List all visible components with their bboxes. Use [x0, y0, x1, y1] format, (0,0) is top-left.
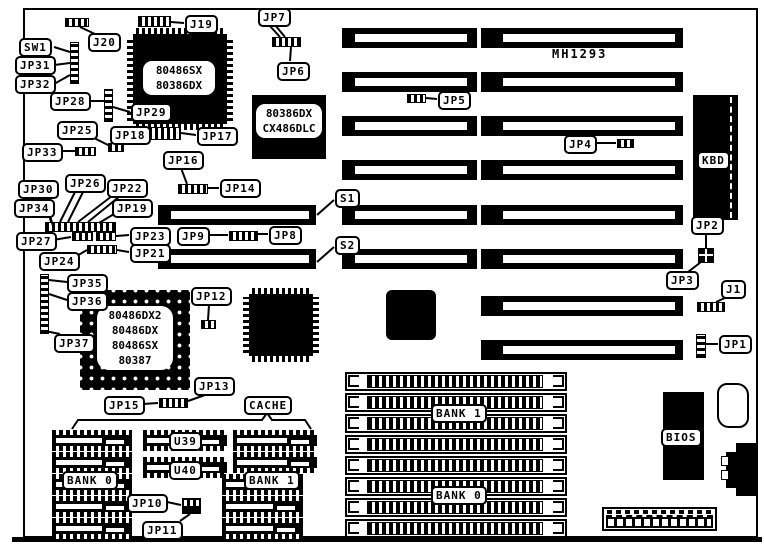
cache-dip-chip: [222, 496, 303, 517]
callout-jp35: JP35: [67, 274, 108, 293]
callout-jp30: JP30: [18, 180, 59, 199]
simm-socket: [345, 372, 567, 391]
isa-slot-long: [481, 116, 683, 136]
cache-dip-chip: [52, 496, 132, 517]
chip-line: 80486DX2: [99, 308, 171, 323]
isa-slot-short: [342, 72, 477, 92]
callout-jp6: JP6: [277, 62, 310, 81]
jumper-jp12: [201, 320, 216, 329]
chip-line: 80386DX: [145, 78, 213, 93]
callout-jp16: JP16: [163, 151, 204, 170]
callout-jp8: JP8: [269, 226, 302, 245]
jumper-jp9: [229, 231, 258, 241]
jumper-cluster-main: [45, 222, 116, 232]
callout-jp12: JP12: [191, 287, 232, 306]
jumper-jp33: [75, 147, 96, 156]
callout-jp1: JP1: [719, 335, 752, 354]
callout-bank1_cache: BANK 1: [244, 471, 300, 490]
isa-slot-short: [342, 28, 477, 48]
jumper-jp10: [182, 498, 201, 514]
isa-slot-long: [481, 28, 683, 48]
power-tab: [721, 456, 729, 466]
jumper-jp2: [698, 248, 714, 263]
callout-jp5: JP5: [438, 91, 471, 110]
chip-qfp-486sx-label: 80486SX 80386DX: [143, 61, 215, 95]
callout-bank0_simm: BANK 0: [431, 486, 487, 505]
callout-jp34: JP34: [14, 199, 55, 218]
cache-dip-chip: [52, 430, 132, 451]
bottom-pin-header: [602, 507, 717, 531]
board-model: MH1293: [552, 47, 607, 61]
motherboard-diagram: MH1293 80486SX 80386DX 80386DX CX486DLC …: [0, 0, 764, 547]
callout-jp13: JP13: [194, 377, 235, 396]
chip-line: 80387: [99, 353, 171, 368]
jumper-jp14: [178, 184, 208, 194]
callout-j1: J1: [721, 280, 746, 299]
callout-jp19: JP19: [112, 199, 153, 218]
callout-jp3: JP3: [666, 271, 699, 290]
cache-dip-chip: [52, 452, 132, 473]
callout-jp21: JP21: [130, 244, 171, 263]
chip-line: 80486SX: [145, 63, 213, 78]
callout-jp37: JP37: [54, 334, 95, 353]
callout-jp15: JP15: [104, 396, 145, 415]
callout-jp32: JP32: [15, 75, 56, 94]
callout-u40: U40: [169, 461, 202, 480]
callout-cache: CACHE: [244, 396, 292, 415]
header-tabs: [607, 510, 712, 514]
jumper-cluster-b: [96, 232, 116, 241]
jumper-jp15: [159, 398, 188, 408]
isa-slot-short: [342, 160, 477, 180]
callout-jp10: JP10: [127, 494, 168, 513]
jumper-jp7: [272, 37, 301, 47]
isa-slot-short: [342, 205, 477, 225]
chip-line: CX486DLC: [258, 121, 320, 136]
callout-kbd: KBD: [697, 151, 730, 170]
callout-jp4: JP4: [564, 135, 597, 154]
jumper-sw1: [70, 42, 79, 84]
callout-s1: S1: [335, 189, 360, 208]
chip-line: 80486SX: [99, 338, 171, 353]
callout-jp28: JP28: [50, 92, 91, 111]
callout-jp18: JP18: [110, 126, 151, 145]
vlb-slot: [158, 205, 316, 225]
callout-jp25: JP25: [57, 121, 98, 140]
callout-jp33: JP33: [22, 143, 63, 162]
callout-jp7: JP7: [258, 8, 291, 27]
isa-slot-long: [481, 160, 683, 180]
isa-slot-long: [481, 72, 683, 92]
callout-jp24: JP24: [39, 252, 80, 271]
jumper-jp1: [696, 334, 706, 358]
cache-dip-chip: [233, 430, 317, 451]
power-tab: [721, 470, 729, 480]
callout-j20: J20: [88, 33, 121, 52]
chip-line: 80486DX: [99, 323, 171, 338]
vlb-slot: [158, 249, 316, 269]
isa-slot-short: [342, 249, 477, 269]
callout-bank1_simm: BANK 1: [431, 404, 487, 423]
chip-copro-label: 80386DX CX486DLC: [256, 104, 322, 138]
jumper-j20: [65, 18, 89, 27]
jumper-jp5: [407, 94, 426, 103]
callout-jp31: JP31: [15, 56, 56, 75]
callout-s2: S2: [335, 236, 360, 255]
callout-u39: U39: [169, 432, 202, 451]
callout-jp14: JP14: [220, 179, 261, 198]
cache-dip-chip: [52, 518, 132, 539]
isa-slot-short: [342, 116, 477, 136]
jumper-j19: [138, 16, 171, 27]
isa-slot-long: [481, 296, 683, 316]
callout-jp17: JP17: [197, 127, 238, 146]
isa-slot-long: [481, 249, 683, 269]
callout-jp26: JP26: [65, 174, 106, 193]
isa-slot-long: [481, 340, 683, 360]
jumper-j1: [697, 302, 725, 312]
jumper-jp18: [148, 127, 181, 140]
simm-socket: [345, 435, 567, 454]
callout-j19: J19: [185, 15, 218, 34]
battery-outline: [717, 383, 749, 428]
cpu-pga-label: 80486DX2 80486DX 80486SX 80387: [97, 306, 173, 370]
jumper-jp4: [617, 139, 634, 148]
chip-square: [386, 290, 436, 340]
cache-dip-chip: [222, 518, 303, 539]
jumper-jp28: [104, 89, 113, 122]
callout-jp11: JP11: [142, 521, 183, 540]
callout-jp9: JP9: [177, 227, 210, 246]
cache-dip-chip: [233, 452, 317, 473]
simm-socket: [345, 456, 567, 475]
jumper-cluster-a: [72, 232, 93, 241]
callout-jp27: JP27: [16, 232, 57, 251]
jumper-cluster-c: [87, 245, 117, 254]
callout-bios: BIOS: [661, 428, 702, 447]
callout-jp2: JP2: [691, 216, 724, 235]
chip-qfp-chipset: [243, 288, 319, 362]
simm-socket: [345, 519, 567, 538]
header-pins: [606, 517, 713, 528]
jumper-jp35: [40, 274, 49, 334]
callout-sw1: SW1: [19, 38, 52, 57]
chip-line: 80386DX: [258, 106, 320, 121]
callout-bank0_cache: BANK 0: [62, 471, 118, 490]
callout-jp22: JP22: [107, 179, 148, 198]
isa-slot-long: [481, 205, 683, 225]
callout-jp29: JP29: [131, 103, 172, 122]
callout-jp36: JP36: [67, 292, 108, 311]
